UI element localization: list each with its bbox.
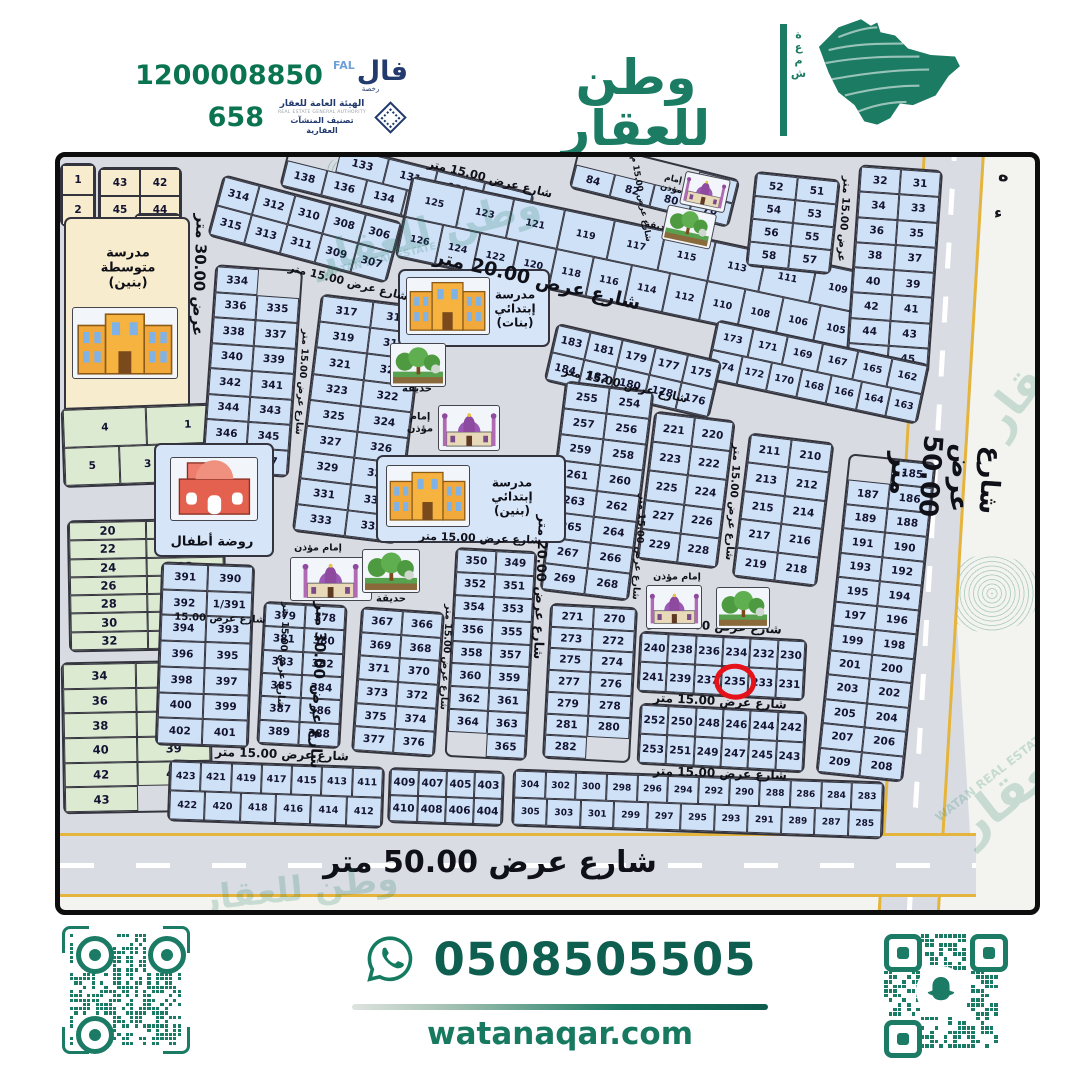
plot-361: 361 <box>488 688 528 713</box>
plot-286: 286 <box>790 780 822 808</box>
plot-289: 289 <box>781 807 815 835</box>
plot-209: 209 <box>818 747 862 776</box>
plot-299: 299 <box>613 801 647 829</box>
plot-35: 35 <box>896 220 938 248</box>
plot-33: 33 <box>898 194 940 222</box>
kindergarten-icon <box>170 457 258 521</box>
plot-4: 4 <box>63 407 147 448</box>
block-b411: 423421419417415413411422420418416414412 <box>167 759 385 829</box>
plot-339: 339 <box>252 346 296 374</box>
plot-293: 293 <box>714 805 748 833</box>
plot-236: 236 <box>695 636 724 666</box>
plot-36: 36 <box>856 217 898 245</box>
plot-340: 340 <box>210 343 254 371</box>
school-icon <box>406 277 490 335</box>
plot-281: 281 <box>545 713 588 737</box>
plot-249: 249 <box>693 737 722 767</box>
plot-423: 423 <box>170 761 201 791</box>
plot-415: 415 <box>291 766 322 796</box>
plot-253: 253 <box>639 734 668 764</box>
plot-43: 43 <box>65 786 138 812</box>
plot-40: 40 <box>852 267 894 295</box>
block-b210: 211210213212215214217216219218 <box>731 432 834 587</box>
plot-230: 230 <box>777 640 806 670</box>
plot-296: 296 <box>637 775 669 803</box>
plot-290: 290 <box>729 778 761 806</box>
street-label: إمام مؤذن <box>653 573 701 584</box>
plot-287: 287 <box>814 808 848 836</box>
plot-39: 39 <box>892 270 934 298</box>
street-label: شارع عرض 50.00 متر <box>323 846 657 881</box>
street-label: حديقة <box>376 593 406 605</box>
block-b270: 271270273272275274277276279278281280282 <box>542 603 638 763</box>
plot-334: 334 <box>215 266 259 294</box>
plot-221: 221 <box>653 413 695 447</box>
street-label: شارع عرض 50.00 متر <box>881 427 1007 526</box>
plot-400: 400 <box>158 692 204 719</box>
plot-298: 298 <box>606 774 638 802</box>
plot-row: 400399 <box>158 692 249 721</box>
plot-417: 417 <box>261 764 292 794</box>
plot-356: 356 <box>453 618 493 643</box>
plot-43: 43 <box>889 320 931 348</box>
cutoff-text-fragment: ء <box>994 203 1002 222</box>
plot-38: 38 <box>64 712 137 738</box>
plot-36: 36 <box>63 688 136 714</box>
block-b366: 367366369368371370373372375374377376 <box>351 606 445 758</box>
plot-row: 391390 <box>162 563 253 592</box>
plot-row: 410408406404 <box>389 795 502 825</box>
plot-270: 270 <box>593 607 636 631</box>
plot-302: 302 <box>545 772 577 800</box>
plot-271: 271 <box>551 605 594 629</box>
plot-268: 268 <box>584 568 630 599</box>
plot-412: 412 <box>346 796 382 826</box>
plot-row: 389388 <box>258 719 339 746</box>
plot-292: 292 <box>698 777 730 805</box>
rega-line3: تصنيف المنشآت العقارية <box>274 116 370 136</box>
plot-40: 40 <box>64 737 137 763</box>
plot-282: 282 <box>544 735 587 759</box>
plot-399: 399 <box>203 694 249 721</box>
street-label: مدرسة متوسطة (بنين) <box>101 247 156 292</box>
plot-247: 247 <box>720 738 749 768</box>
plot-223: 223 <box>649 442 691 476</box>
plot-272: 272 <box>592 629 635 653</box>
plot-224: 224 <box>684 476 726 510</box>
plot-232: 232 <box>749 638 778 668</box>
plot-22: 22 <box>69 539 146 559</box>
plot-305: 305 <box>513 798 547 826</box>
snapchat-qr-code[interactable] <box>876 926 1006 1056</box>
plot-341: 341 <box>250 371 294 399</box>
plot-350: 350 <box>456 549 496 574</box>
plot-231: 231 <box>775 669 804 699</box>
street-label: مدرسة إبتدائي (بنين) <box>491 476 532 517</box>
phone-number[interactable]: 0508505505 <box>433 933 756 986</box>
plot-222: 222 <box>688 447 730 481</box>
block-b31: 32313433363538374039424144434645 <box>845 164 943 375</box>
plot-248: 248 <box>695 708 724 738</box>
plot-294: 294 <box>667 776 699 804</box>
plot-44: 44 <box>849 318 891 346</box>
plot-375: 375 <box>355 703 397 729</box>
plot-row: 409407405403 <box>390 769 503 799</box>
plot-376: 376 <box>393 729 435 755</box>
plot-352: 352 <box>455 572 495 597</box>
plot-401: 401 <box>202 719 248 746</box>
block-b390: 3913903921/39139439339639539839740039940… <box>155 561 255 748</box>
plot-42: 42 <box>64 762 137 788</box>
mosque-icon <box>646 585 702 629</box>
plot-370: 370 <box>398 658 440 684</box>
plot-402: 402 <box>157 718 203 745</box>
plot-420: 420 <box>204 792 240 822</box>
plot-366: 366 <box>401 611 443 637</box>
street-label: روضة أطفال <box>171 536 254 551</box>
street-label: إمام مؤذن <box>407 412 433 435</box>
plot-391: 391 <box>162 563 208 590</box>
plot-335: 335 <box>256 295 300 323</box>
plot-351: 351 <box>494 574 534 599</box>
park-icon <box>362 549 420 593</box>
brand-vertical-word: شمعة <box>792 28 805 136</box>
plot-map: 1243424544464153218201922212423262528273… <box>55 152 1040 915</box>
plot-252: 252 <box>640 705 669 735</box>
plot-280: 280 <box>587 716 630 740</box>
plot-284: 284 <box>821 781 853 809</box>
rega-logo: الهيئة العامة للعقار REAL ESTATE GENERAL… <box>274 99 408 136</box>
plot-row: 282 <box>544 735 629 761</box>
plot-227: 227 <box>642 500 684 534</box>
plot-238: 238 <box>667 634 696 664</box>
website-url[interactable]: watanaqar.com <box>330 1016 790 1052</box>
plot-373: 373 <box>356 679 398 705</box>
plot-246: 246 <box>722 709 751 739</box>
highlighted-plot-235: 235 <box>720 666 749 696</box>
plot-row: 364363 <box>448 709 527 736</box>
plot-409: 409 <box>390 769 419 796</box>
fal-arabic: فال <box>357 58 408 85</box>
plot-406: 406 <box>445 797 474 824</box>
plot-278: 278 <box>588 694 631 718</box>
plot-251: 251 <box>666 735 695 765</box>
street-label: مدرسة إبتدائي (بنات) <box>494 288 535 329</box>
plot-57: 57 <box>788 246 831 273</box>
plot-219: 219 <box>734 547 778 580</box>
plot-225: 225 <box>646 471 688 505</box>
plot-360: 360 <box>450 663 490 688</box>
plot-163: 163 <box>886 388 922 423</box>
plot-291: 291 <box>747 806 781 834</box>
plot-244: 244 <box>749 710 778 740</box>
block-b349: 3503493523513543533563553583573603593623… <box>445 547 538 761</box>
plot-276: 276 <box>589 672 632 696</box>
plot-34: 34 <box>858 192 900 220</box>
plot-38: 38 <box>854 242 896 270</box>
plot-243: 243 <box>775 741 804 771</box>
saudi-map-icon <box>806 10 968 142</box>
plot-34: 34 <box>63 663 136 689</box>
plot-24: 24 <box>70 558 147 578</box>
plot-42: 42 <box>851 292 893 320</box>
classification-number: 658 <box>208 102 264 133</box>
plot-367: 367 <box>361 608 403 634</box>
plot-269: 269 <box>542 563 588 594</box>
plot-410: 410 <box>389 795 418 822</box>
plot-275: 275 <box>549 648 592 672</box>
plot-239: 239 <box>666 663 695 693</box>
plot-31: 31 <box>899 169 941 197</box>
snapchat-ghost-icon <box>916 966 966 1016</box>
plot-226: 226 <box>681 505 723 539</box>
plot-403: 403 <box>474 772 503 799</box>
plot-220: 220 <box>691 418 733 452</box>
plot-58: 58 <box>747 242 790 269</box>
plot-283: 283 <box>851 782 883 810</box>
plot-336: 336 <box>214 292 258 320</box>
block-b51: 5251545356555857 <box>745 171 841 275</box>
plot-349: 349 <box>495 551 535 576</box>
license-block: 1200008850 FALفال رخصة 658 الهيئة العامة… <box>168 58 408 142</box>
plot-304: 304 <box>514 771 546 799</box>
plot-372: 372 <box>396 682 438 708</box>
plot-343: 343 <box>248 396 292 424</box>
plot-398: 398 <box>159 666 205 693</box>
plot-337: 337 <box>254 320 298 348</box>
plot-338: 338 <box>212 317 256 345</box>
website-qr-code[interactable] <box>62 926 190 1054</box>
plot-414: 414 <box>310 795 346 825</box>
plot-344: 344 <box>207 394 251 422</box>
plot-301: 301 <box>580 800 614 828</box>
plot-285: 285 <box>847 809 881 837</box>
plot-359: 359 <box>489 665 529 690</box>
plot-41: 41 <box>890 295 932 323</box>
block-b403: 409407405403410408406404 <box>387 767 505 827</box>
plot-row: 4342 <box>100 169 180 196</box>
street-label: عرض 30.00 متر <box>188 214 210 337</box>
plot-32: 32 <box>71 631 148 651</box>
park-icon <box>390 343 446 387</box>
plot-297: 297 <box>647 802 681 830</box>
rega-diamond-icon <box>374 101 407 134</box>
fal-sub: رخصة <box>362 86 380 93</box>
plot-row: 365 <box>447 732 526 759</box>
plot-30: 30 <box>70 612 147 632</box>
plot-242: 242 <box>777 712 806 742</box>
whatsapp-icon <box>363 932 417 986</box>
plot-row: 1 <box>62 165 94 195</box>
fal-license-number: 1200008850 <box>135 60 323 91</box>
footer-divider <box>352 1004 768 1010</box>
plot-369: 369 <box>360 632 402 658</box>
plot-397: 397 <box>204 668 250 695</box>
plot-408: 408 <box>417 796 446 823</box>
plot-26: 26 <box>70 576 147 596</box>
plot-357: 357 <box>490 643 530 668</box>
plot-218: 218 <box>774 552 818 585</box>
plot-371: 371 <box>358 656 400 682</box>
plot-row: 398397 <box>159 666 250 695</box>
plot-405: 405 <box>446 771 475 798</box>
plot-42: 42 <box>140 169 180 196</box>
mosque-icon <box>290 557 372 601</box>
fal-latin: FAL <box>333 60 355 71</box>
plot-20: 20 <box>69 521 146 541</box>
plot-353: 353 <box>493 597 533 622</box>
plot-1: 1 <box>62 165 94 195</box>
plot-5: 5 <box>64 446 121 486</box>
school-icon <box>386 465 470 527</box>
plot-422: 422 <box>169 790 205 820</box>
plot-273: 273 <box>550 627 593 651</box>
plot-300: 300 <box>575 773 607 801</box>
plot-364: 364 <box>448 709 488 734</box>
mosque-icon <box>438 405 500 451</box>
plot-240: 240 <box>640 633 669 663</box>
plot-295: 295 <box>680 803 714 831</box>
plot-418: 418 <box>240 793 276 823</box>
plot-358: 358 <box>451 641 491 666</box>
plot-365: 365 <box>486 734 526 759</box>
brand-divider-bar <box>780 24 787 136</box>
plot-333: 333 <box>294 504 348 536</box>
plot-row: 377376 <box>353 726 434 755</box>
school-icon <box>72 307 178 379</box>
plot-274: 274 <box>591 650 634 674</box>
plot-208: 208 <box>859 752 903 781</box>
plot-374: 374 <box>395 706 437 732</box>
plot-279: 279 <box>546 692 589 716</box>
plot-row: 422420418416414412 <box>169 790 382 826</box>
plot-411: 411 <box>352 768 383 798</box>
plot-419: 419 <box>231 763 262 793</box>
plot-342: 342 <box>208 368 252 396</box>
park-icon <box>716 587 770 629</box>
street-label: إمام مؤذن <box>294 544 342 555</box>
plot-288: 288 <box>759 779 791 807</box>
plot-32: 32 <box>859 166 901 194</box>
plot-396: 396 <box>160 641 206 668</box>
plot-390: 390 <box>207 565 253 592</box>
block-b378: 379378381380383382385384387386389388 <box>256 601 347 749</box>
plot-354: 354 <box>454 595 494 620</box>
plot-404: 404 <box>473 798 502 825</box>
plot-389: 389 <box>258 719 299 744</box>
plot-355: 355 <box>492 620 532 645</box>
plot-37: 37 <box>894 245 936 273</box>
plot-377: 377 <box>353 726 395 752</box>
plot-row: 396395 <box>160 641 251 670</box>
plot-416: 416 <box>275 794 311 824</box>
plot-303: 303 <box>547 799 581 827</box>
plot-241: 241 <box>639 662 668 692</box>
plot-362: 362 <box>449 686 489 711</box>
plot-407: 407 <box>418 770 447 797</box>
plot-395: 395 <box>205 642 251 669</box>
watermark: للعقار <box>970 309 1040 445</box>
plot-421: 421 <box>200 762 231 792</box>
brand-arabic-title: وطن للعقار <box>498 52 774 155</box>
flyer-page: 1200008850 FALفال رخصة 658 الهيئة العامة… <box>0 0 1080 1080</box>
plot-368: 368 <box>400 635 442 661</box>
cutoff-text-fragment: ه <box>998 165 1009 186</box>
plot-28: 28 <box>70 594 147 614</box>
plot-row: 402401 <box>157 718 248 747</box>
block-b242: 252250248246244242253251249247245243 <box>636 703 807 774</box>
rega-line1: الهيئة العامة للعقار <box>274 99 370 110</box>
plot-250: 250 <box>667 706 696 736</box>
plot-277: 277 <box>547 670 590 694</box>
plot-413: 413 <box>321 767 352 797</box>
plot-228: 228 <box>677 533 719 567</box>
fal-logo-icon: FALفال رخصة <box>333 58 408 93</box>
plot-245: 245 <box>748 739 777 769</box>
plot-363: 363 <box>487 711 527 736</box>
phone-row: 0508505505 <box>330 932 790 986</box>
plot-43: 43 <box>100 169 140 196</box>
